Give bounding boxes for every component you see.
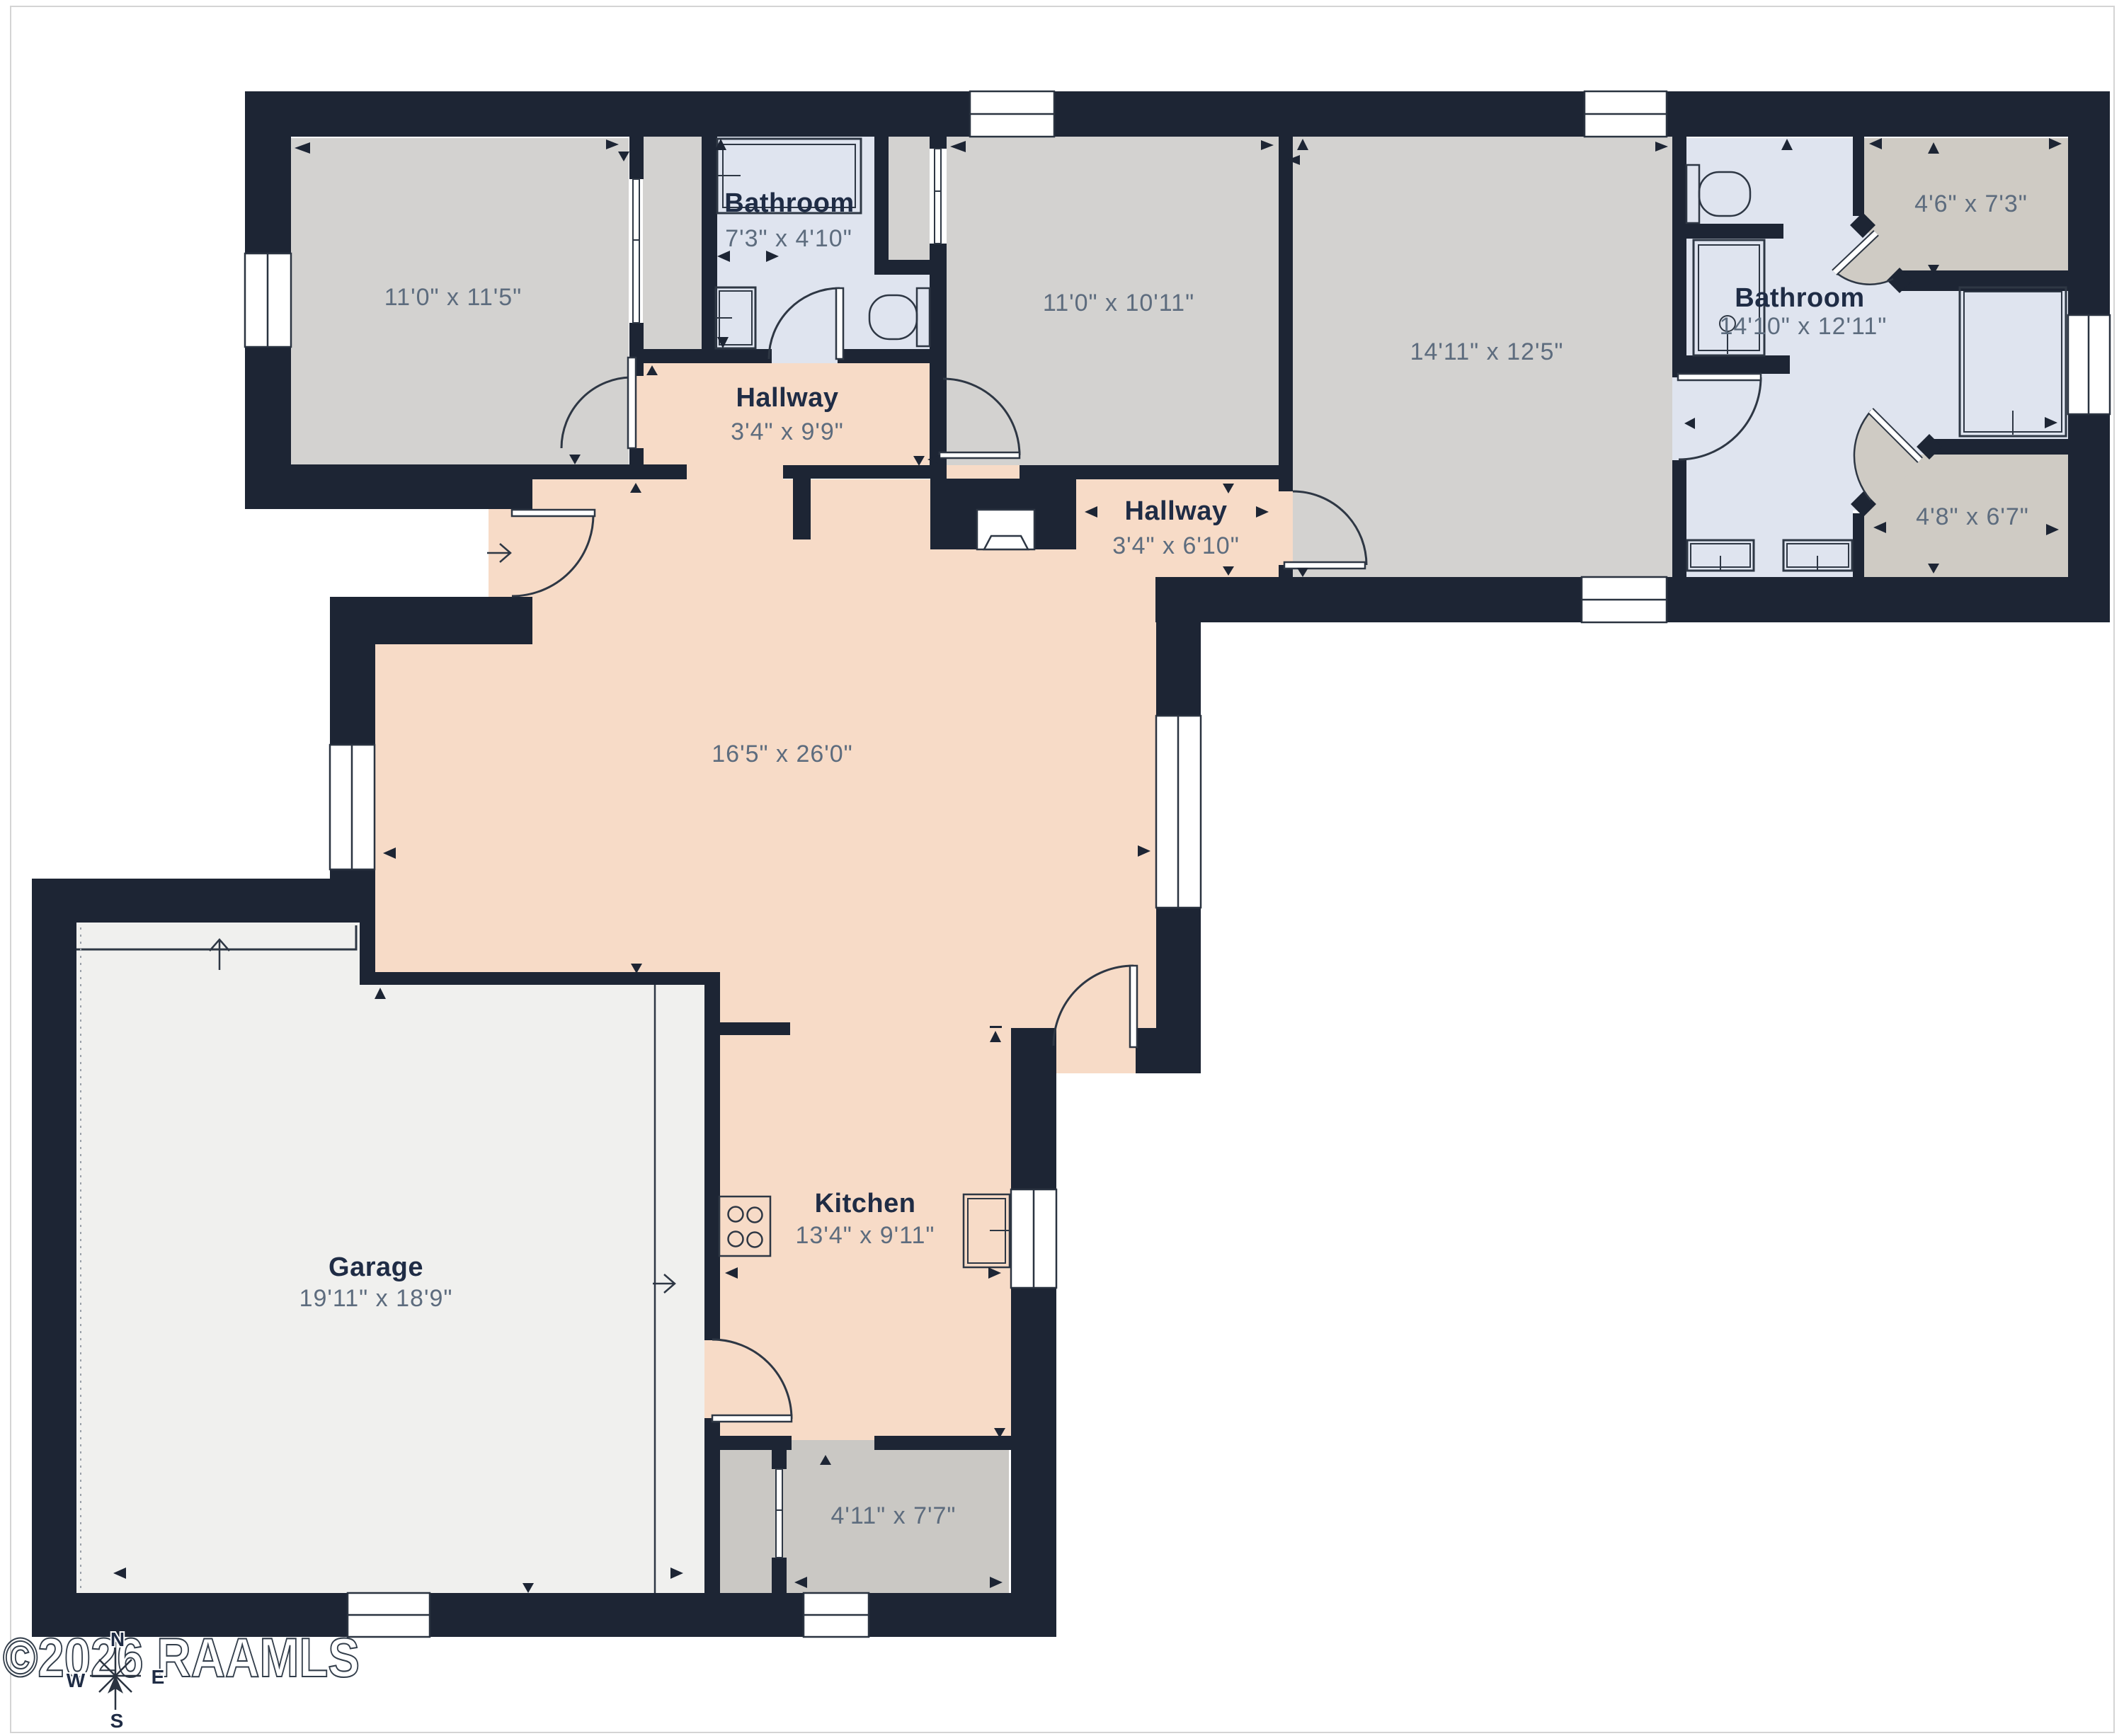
svg-text:11'0" x 11'5": 11'0" x 11'5" (384, 284, 522, 311)
svg-text:19'11" x 18'9": 19'11" x 18'9" (299, 1285, 453, 1312)
svg-text:Bathroom: Bathroom (1735, 283, 1864, 313)
svg-text:11'0" x 10'11": 11'0" x 10'11" (1043, 290, 1194, 316)
svg-text:14'11" x 12'5": 14'11" x 12'5" (1410, 338, 1564, 365)
svg-text:Kitchen: Kitchen (815, 1189, 916, 1218)
svg-text:N: N (110, 1628, 125, 1650)
svg-text:4'11" x 7'7": 4'11" x 7'7" (830, 1502, 956, 1529)
svg-text:Hallway: Hallway (736, 383, 838, 413)
svg-text:3'4" x 6'10": 3'4" x 6'10" (1112, 532, 1240, 559)
svg-text:14'10" x 12'11": 14'10" x 12'11" (1720, 313, 1888, 340)
svg-text:Hallway: Hallway (1124, 496, 1227, 526)
svg-text:3'4" x 9'9": 3'4" x 9'9" (731, 418, 844, 445)
svg-text:Garage: Garage (329, 1252, 423, 1282)
svg-text:©2026 RAAMLS: ©2026 RAAMLS (3, 1626, 360, 1689)
svg-text:16'5" x 26'0": 16'5" x 26'0" (712, 741, 852, 767)
svg-text:Bathroom: Bathroom (724, 188, 854, 218)
svg-text:S: S (110, 1710, 124, 1732)
svg-text:13'4" x 9'11": 13'4" x 9'11" (796, 1222, 935, 1249)
svg-text:4'8" x 6'7": 4'8" x 6'7" (1916, 503, 2029, 530)
svg-text:W: W (67, 1669, 86, 1691)
svg-text:4'6" x 7'3": 4'6" x 7'3" (1914, 190, 2028, 217)
svg-text:E: E (152, 1666, 165, 1688)
svg-text:7'3" x 4'10": 7'3" x 4'10" (725, 225, 852, 252)
